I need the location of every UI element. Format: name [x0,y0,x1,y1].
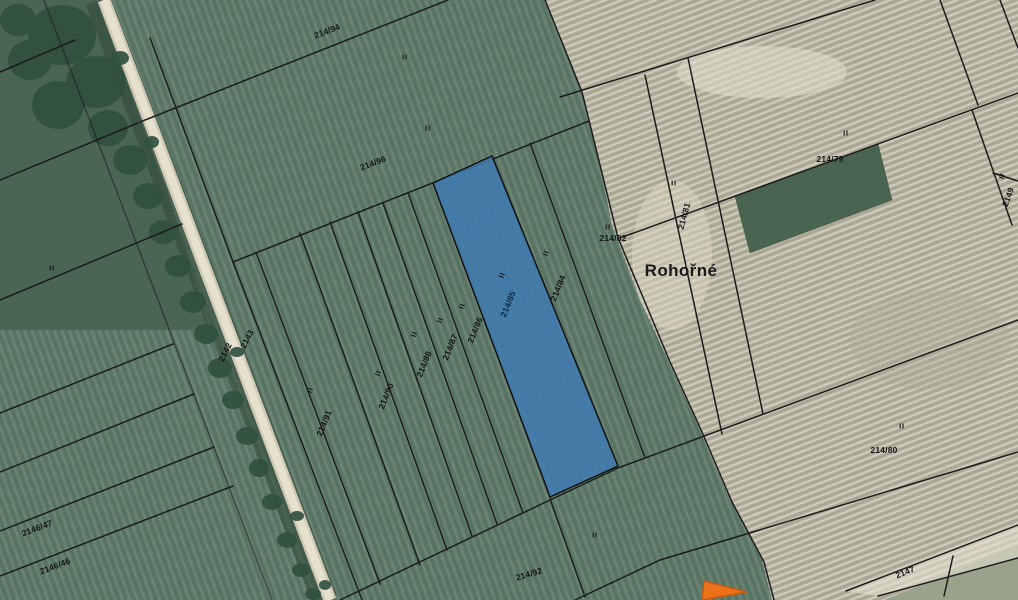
tree-canopy-blob [32,81,84,129]
tree-canopy-blob [249,459,269,477]
tree-canopy-blob [319,580,331,590]
tree-canopy-blob [0,4,36,36]
tree-canopy-blob [133,183,163,209]
tree-canopy-blob [165,255,191,277]
tree-canopy-blob [305,588,321,600]
soil-mottle [850,290,1010,390]
tree-canopy-blob [111,51,129,65]
tree-canopy-blob [194,324,218,344]
tree-canopy-blob [292,563,310,577]
landuse-symbol: II [402,53,408,62]
landuse-symbol: II [425,124,431,133]
tree-canopy-blob [222,391,244,409]
landuse-symbol: II [49,264,55,273]
tree-canopy-blob [290,511,304,521]
tree-canopy-blob [236,427,258,445]
landuse-symbol: II [592,531,598,540]
landuse-symbol: II [843,129,849,138]
landuse-symbol: II [899,422,905,431]
tree-canopy-blob [145,136,159,148]
parcel-label-214-79: 214/79 [816,154,843,164]
tree-canopy-blob [113,145,147,175]
cadastral-map-canvas[interactable]: Rohořné 214/94 214/96 214/85 214/84 214/… [0,0,1018,600]
place-label: Rohořné [645,261,718,281]
parcel-label-214-82: 214/82 [599,233,626,243]
tree-canopy-blob [180,291,206,313]
parcel-label-214-80: 214/80 [870,445,897,455]
landuse-symbol: II [605,223,611,232]
tree-canopy-blob [262,494,282,510]
tree-canopy-blob [277,532,297,548]
landuse-symbol: II [671,179,677,188]
